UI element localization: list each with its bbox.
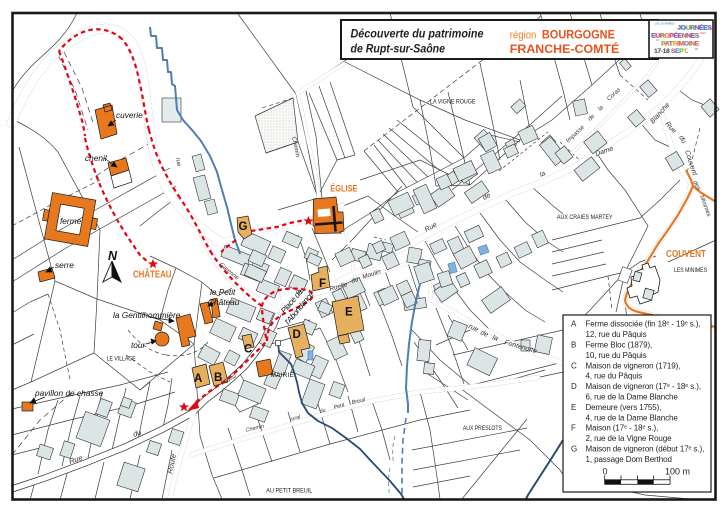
- svg-text:région: région: [510, 30, 537, 42]
- svg-text:AUX CRAIES MARTEY: AUX CRAIES MARTEY: [557, 214, 613, 221]
- svg-text:G: G: [571, 445, 577, 454]
- svg-text:D: D: [571, 382, 577, 391]
- svg-text:4, rue de la Dame Blanche: 4, rue de la Dame Blanche: [586, 413, 679, 422]
- svg-text:A: A: [194, 373, 202, 385]
- svg-text:COUVENT: COUVENT: [666, 248, 706, 260]
- svg-text:Maison de vigneron (1719),: Maison de vigneron (1719),: [586, 361, 681, 370]
- svg-text:.FR: .FR: [694, 47, 698, 51]
- svg-text:G: G: [239, 221, 248, 233]
- svg-text:N: N: [108, 249, 118, 263]
- svg-text:Découverte du patrimoine: Découverte du patrimoine: [351, 29, 485, 41]
- svg-text:AUX PRESLOTS: AUX PRESLOTS: [463, 425, 502, 432]
- svg-text:LE VILLAGE: LE VILLAGE: [107, 356, 136, 363]
- svg-text:E: E: [571, 403, 576, 412]
- svg-text:10, rue du Pâquis: 10, rue du Pâquis: [586, 351, 647, 360]
- svg-text:PATRIMOINE: PATRIMOINE: [662, 41, 701, 48]
- svg-text:17-18 SEPT.: 17-18 SEPT.: [654, 48, 688, 55]
- svg-text:le Petit: le Petit: [210, 287, 236, 297]
- svg-text:serre: serre: [55, 260, 74, 270]
- svg-text:CHÂTEAU: CHÂTEAU: [133, 268, 172, 281]
- svg-text:F: F: [571, 424, 576, 433]
- svg-text:2, rue de la Vigne Rouge: 2, rue de la Vigne Rouge: [586, 434, 673, 443]
- svg-text:A: A: [571, 320, 577, 329]
- svg-text:D: D: [293, 329, 301, 341]
- svg-text:tour: tour: [131, 340, 147, 350]
- svg-text:cuverie: cuverie: [116, 110, 143, 120]
- svg-text:BOURGOGNE: BOURGOGNE: [542, 28, 615, 42]
- svg-text:Maison de vigneron (17ᵉ - 18ᵉ: Maison de vigneron (17ᵉ - 18ᵉ s.),: [586, 382, 702, 391]
- svg-text:Ferme dissociée (fin 18ᵉ - 19ᵉ: Ferme dissociée (fin 18ᵉ - 19ᵉ s.),: [586, 320, 701, 329]
- svg-text:Maison de vigneron (début 17ᵉ: Maison de vigneron (début 17ᵉ s.),: [586, 445, 705, 454]
- svg-text:E: E: [345, 307, 353, 319]
- svg-text:Ferme Bloc (1879),: Ferme Bloc (1879),: [586, 341, 653, 350]
- svg-text:ÉGLISE: ÉGLISE: [330, 184, 357, 194]
- svg-text:4, rue du Pâquis: 4, rue du Pâquis: [586, 372, 643, 381]
- svg-text:LES MINIMES: LES MINIMES: [674, 267, 707, 274]
- svg-text:1, passage Dom Berthod: 1, passage Dom Berthod: [586, 455, 672, 464]
- svg-text:LA VIGNE ROUGE: LA VIGNE ROUGE: [430, 99, 476, 106]
- svg-text:F: F: [319, 278, 326, 290]
- svg-text:JOURNÉES: JOURNÉES: [678, 23, 713, 32]
- svg-text:12, rue du Pâquis: 12, rue du Pâquis: [586, 330, 647, 339]
- svg-text:2016: 2016: [700, 31, 706, 35]
- svg-text:pavillon de chasse: pavillon de chasse: [34, 388, 104, 398]
- svg-text:Demeure (vers 1755),: Demeure (vers 1755),: [586, 403, 662, 412]
- svg-text:C: C: [571, 361, 577, 370]
- svg-text:AU PETIT BREUIL: AU PETIT BREUIL: [266, 488, 312, 495]
- svg-text:DU: DU: [656, 38, 660, 42]
- svg-text:B: B: [571, 341, 576, 350]
- svg-text:MAIRIE: MAIRIE: [271, 372, 295, 379]
- svg-text:0: 0: [603, 467, 608, 477]
- svg-text:Maison (17ᵉ - 18ᵉ s.),: Maison (17ᵉ - 18ᵉ s.),: [586, 424, 659, 433]
- svg-text:ferme: ferme: [60, 216, 82, 226]
- svg-text:C: C: [244, 344, 252, 356]
- svg-text:FRANCHE-COMTÉ: FRANCHE-COMTÉ: [510, 41, 620, 56]
- svg-text:6, rue de la Dame Blanche: 6, rue de la Dame Blanche: [586, 393, 679, 402]
- svg-text:de Rupt-sur-Saône: de Rupt-sur-Saône: [351, 43, 446, 55]
- svg-text:100 m: 100 m: [665, 467, 690, 477]
- svg-text:la Gentilhommière: la Gentilhommière: [113, 310, 181, 320]
